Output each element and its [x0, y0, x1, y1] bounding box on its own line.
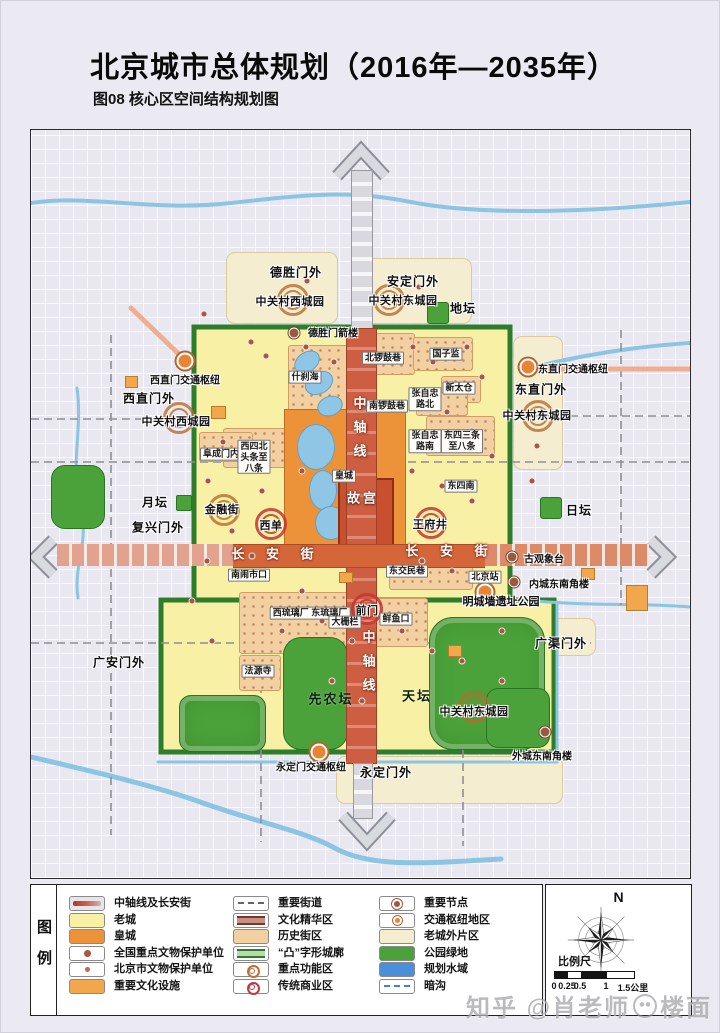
- natsite-swatch: [69, 946, 105, 961]
- watermark-text: 楼面: [660, 988, 712, 1023]
- park-swatch: [379, 946, 415, 961]
- legend-item: 规划水域: [379, 963, 490, 976]
- legend-item: 公园绿地: [379, 947, 490, 960]
- scale-label: 比例尺: [558, 953, 591, 969]
- scale-bar-segment: [555, 972, 568, 978]
- legend-item-label: 公园绿地: [424, 947, 468, 960]
- legend-item-label: 重点功能区: [278, 963, 333, 976]
- legend-item-label: 历史街区: [278, 930, 322, 943]
- water-swatch: [379, 962, 415, 977]
- legend-column: 重要街道文化精华区历史街区“凸”字形城廓重点功能区传统商业区: [233, 897, 344, 996]
- culvert-swatch: [379, 979, 415, 994]
- scale-bar-segment: [607, 972, 634, 978]
- node-swatch: [379, 896, 415, 911]
- legend-item: 老城外片区: [379, 930, 490, 943]
- page-subtitle: 图08 核心区空间结构规划图: [93, 88, 279, 109]
- page-title: 北京城市总体规划（2016年—2035年）: [90, 44, 617, 86]
- scale-bar-segment: [581, 972, 607, 978]
- legend-item-label: 皇城: [114, 930, 136, 943]
- legend-item: 全国重点文物保护单位: [69, 947, 224, 960]
- legend-item: 中轴线及长安街: [69, 897, 224, 910]
- outer-swatch: [379, 929, 415, 944]
- north-river: [31, 195, 690, 211]
- legend-item: 传统商业区: [233, 980, 344, 993]
- axis-south-arrow: [343, 816, 391, 842]
- northeast-river: [530, 343, 690, 368]
- page: 北京城市总体规划（2016年—2035年） 图08 核心区空间结构规划图: [0, 0, 720, 1033]
- legend-item: 交通枢纽地区: [379, 914, 490, 927]
- legend-item-label: 北京市文物保护单位: [114, 963, 213, 976]
- axis-swatch: [69, 896, 105, 911]
- legend-item-label: 文化精华区: [278, 914, 333, 927]
- watermark-face-icon: [633, 994, 657, 1018]
- watermark-text: 知乎 @肖老师: [466, 988, 630, 1023]
- legend-item: 重要街道: [233, 897, 344, 910]
- legend-item-label: 交通枢纽地区: [424, 914, 490, 927]
- legend-item-label: “凸”字形城廓: [278, 947, 344, 960]
- legend-item: “凸”字形城廓: [233, 947, 344, 960]
- culturearea-swatch: [233, 913, 269, 928]
- major-road: [131, 308, 187, 362]
- east-canal: [536, 601, 690, 607]
- southwest-river: [31, 757, 501, 863]
- historic-swatch: [233, 929, 269, 944]
- functional-swatch: [233, 962, 269, 977]
- oldcity-swatch: [69, 913, 105, 928]
- axis-north-arrow: [337, 150, 385, 176]
- tuwall-swatch: [233, 946, 269, 961]
- legend-item-label: 重要节点: [424, 897, 468, 910]
- legend-item: 老城: [69, 914, 224, 927]
- culture-swatch: [69, 979, 105, 994]
- legend-item-label: 老城: [114, 914, 136, 927]
- legend-column: 重要节点交通枢纽地区老城外片区公园绿地规划水域暗沟: [379, 897, 490, 996]
- imperial-swatch: [69, 929, 105, 944]
- legend-item: 北京市文物保护单位: [69, 963, 224, 976]
- legend-item-label: 暗沟: [424, 980, 446, 993]
- legend-item: 文化精华区: [233, 914, 344, 927]
- legend-item-label: 中轴线及长安街: [114, 897, 191, 910]
- watermark: 知乎 @肖老师 楼面: [466, 988, 712, 1023]
- scale-bar: [554, 971, 635, 979]
- citysite-swatch: [69, 962, 105, 977]
- street-swatch: [233, 896, 269, 911]
- commercial-swatch: [233, 979, 269, 994]
- legend-item: 重要节点: [379, 897, 490, 910]
- legend-item-label: 重要文化设施: [114, 980, 180, 993]
- legend-item: 历史街区: [233, 930, 344, 943]
- legend-item: 皇城: [69, 930, 224, 943]
- legend-item: 重点功能区: [233, 963, 344, 976]
- planning-map: 德胜门外安定门外地坛西直门外东直门外月坛复兴门外日坛广安门外广渠门外永定门外中关…: [30, 129, 691, 879]
- legend-item-label: 老城外片区: [424, 930, 479, 943]
- scale-bar-segment: [568, 972, 581, 978]
- legend-item-label: 重要街道: [278, 897, 322, 910]
- old-city-wall-outline: [161, 327, 554, 752]
- legend-column: 中轴线及长安街老城皇城全国重点文物保护单位北京市文物保护单位重要文化设施: [69, 897, 224, 996]
- map-graphics: [31, 130, 690, 878]
- legend-item-label: 全国重点文物保护单位: [114, 947, 224, 960]
- legend-item-label: 规划水域: [424, 963, 468, 976]
- legend-item: 重要文化设施: [69, 980, 224, 993]
- legend-item-label: 传统商业区: [278, 980, 333, 993]
- hubarea-swatch: [379, 913, 415, 928]
